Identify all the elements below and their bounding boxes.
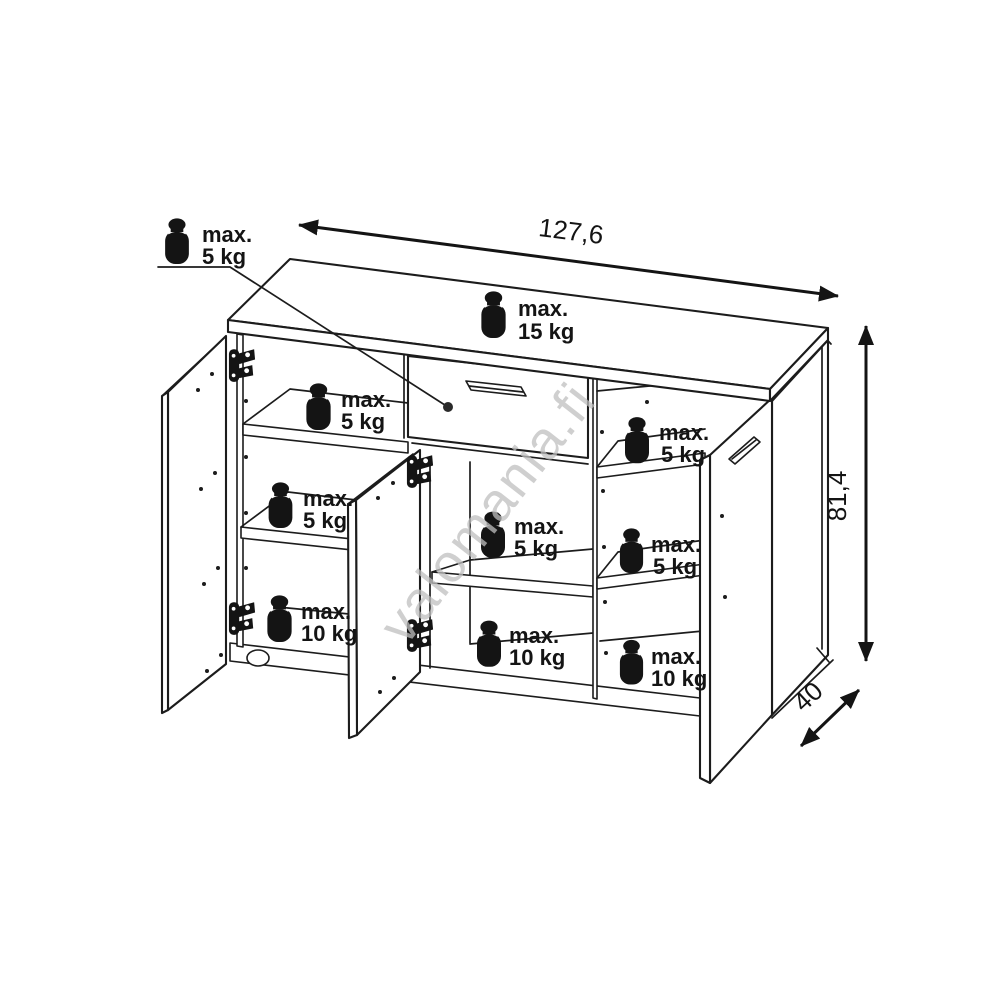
furniture-spec-diagram: max. 5 kg max. 15 kg max. 5 kg max. 5 kg… [0,0,1000,1000]
weight-label-right-middle-shelf-line2: 5 kg [653,554,697,579]
width-dimension-label: 127,6 [537,212,605,250]
left-side-wall [237,334,243,647]
weight-label-right-bottom-line2: 10 kg [651,666,707,691]
weight-label-left-top-shelf-line2: 5 kg [341,409,385,434]
right-door [700,398,772,783]
height-dimension-label: 81,4 [822,471,852,522]
weight-icon-middle-bottom [477,621,501,667]
weight-icon-right-bottom [620,640,643,685]
cabinet-foot [247,650,269,666]
weight-icon-right-middle-shelf [620,528,643,573]
weight-icon-right-top-shelf [625,417,649,463]
weight-icon-left-middle-shelf [269,482,293,528]
weight-icon-left-bottom [267,595,291,642]
weight-label-top-surface-line1: max. [518,296,568,321]
weight-label-middle-bottom-line2: 10 kg [509,645,565,670]
weight-label-left-middle-shelf-line2: 5 kg [303,508,347,533]
weight-icon-drawer [165,218,189,264]
left-door [162,336,226,713]
weight-icon-left-top-shelf [306,383,330,430]
weight-icon-top-surface [481,291,505,338]
weight-label-drawer-line2: 5 kg [202,244,246,269]
weight-label-top-surface-line2: 15 kg [518,319,574,344]
drawer-leader-dot [443,402,453,412]
weight-label-middle-shelf-line2: 5 kg [514,536,558,561]
weight-label-right-top-shelf-line2: 5 kg [661,442,705,467]
cabinet-line-art: max. 5 kg max. 15 kg max. 5 kg max. 5 kg… [0,0,1000,1000]
weight-label-left-bottom-line2: 10 kg [301,621,357,646]
